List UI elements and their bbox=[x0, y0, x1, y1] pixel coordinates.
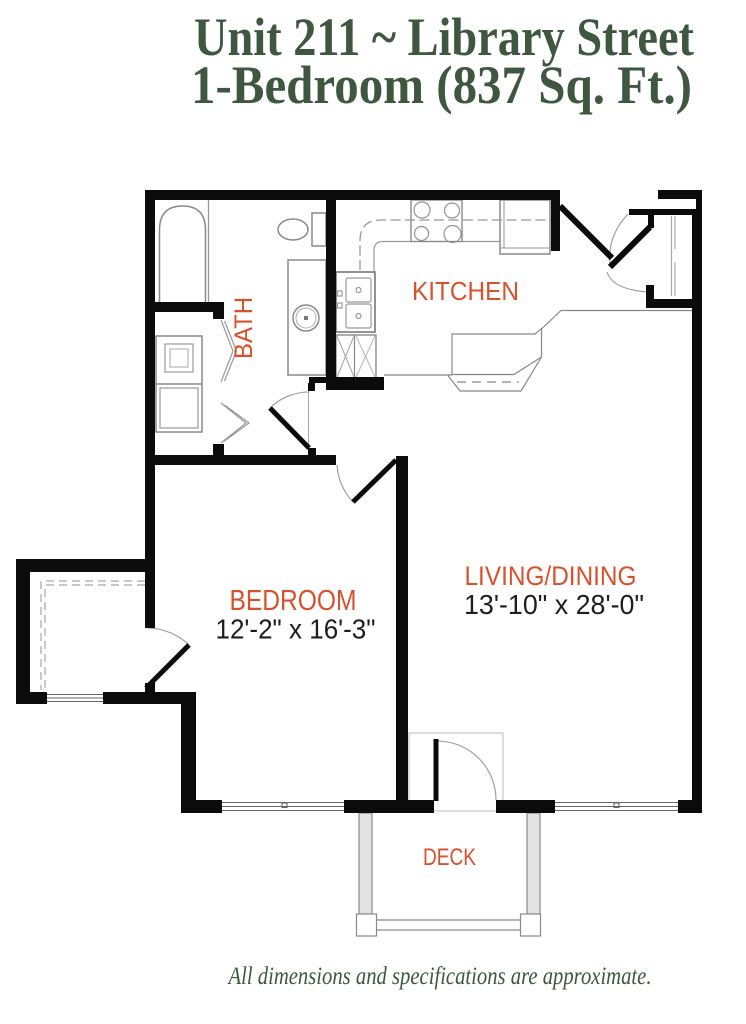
svg-text:DECK: DECK bbox=[423, 844, 476, 871]
svg-text:KITCHEN: KITCHEN bbox=[412, 276, 519, 306]
svg-text:13'-10" x 28'-0": 13'-10" x 28'-0" bbox=[464, 589, 644, 620]
svg-text:BEDROOM: BEDROOM bbox=[230, 585, 357, 617]
svg-text:BATH: BATH bbox=[230, 297, 258, 359]
svg-text:All dimensions and specificati: All dimensions and specifications are ap… bbox=[227, 963, 652, 990]
svg-text:LIVING/DINING: LIVING/DINING bbox=[465, 561, 637, 591]
svg-text:12'-2" x 16'-3": 12'-2" x 16'-3" bbox=[216, 614, 376, 645]
svg-text:1-Bedroom (837 Sq. Ft.): 1-Bedroom (837 Sq. Ft.) bbox=[191, 55, 692, 115]
